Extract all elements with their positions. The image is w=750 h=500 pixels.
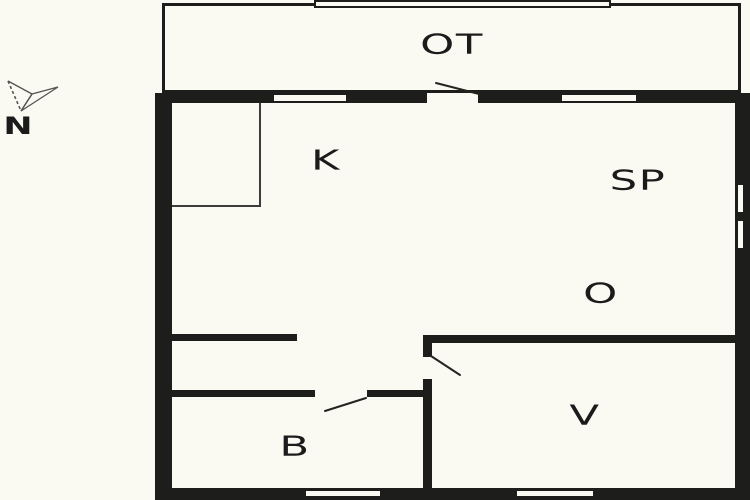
- window-right-1: [736, 183, 745, 214]
- room-label-v: V: [569, 399, 600, 432]
- window-bottom-1: [304, 489, 382, 498]
- compass-north-label: N: [3, 112, 32, 140]
- hall-stub-wall: [172, 334, 297, 341]
- room-label-sp: SP: [610, 164, 667, 197]
- floor-plan: N OT K SP O B V: [0, 0, 750, 500]
- room-label-ot: OT: [420, 28, 484, 61]
- bathroom-top-wall-left: [172, 390, 315, 397]
- room-label-k: K: [311, 144, 341, 177]
- window-bottom-2: [515, 489, 595, 498]
- bathroom-top-wall-right: [367, 390, 430, 397]
- room-label-b: B: [279, 430, 310, 463]
- bedroom-top-wall: [423, 335, 735, 343]
- ot-terrace-top-opening: [314, 0, 611, 8]
- door-opening-terrace: [427, 93, 478, 103]
- closet-wall-right: [259, 103, 261, 207]
- window-right-2: [736, 219, 745, 250]
- window-top-1: [272, 93, 348, 103]
- room-label-o: O: [583, 277, 619, 310]
- window-top-2: [560, 93, 638, 103]
- closet-wall-bottom: [172, 205, 261, 207]
- building-floor: [172, 103, 735, 488]
- room-divider-wall-lower: [423, 379, 432, 488]
